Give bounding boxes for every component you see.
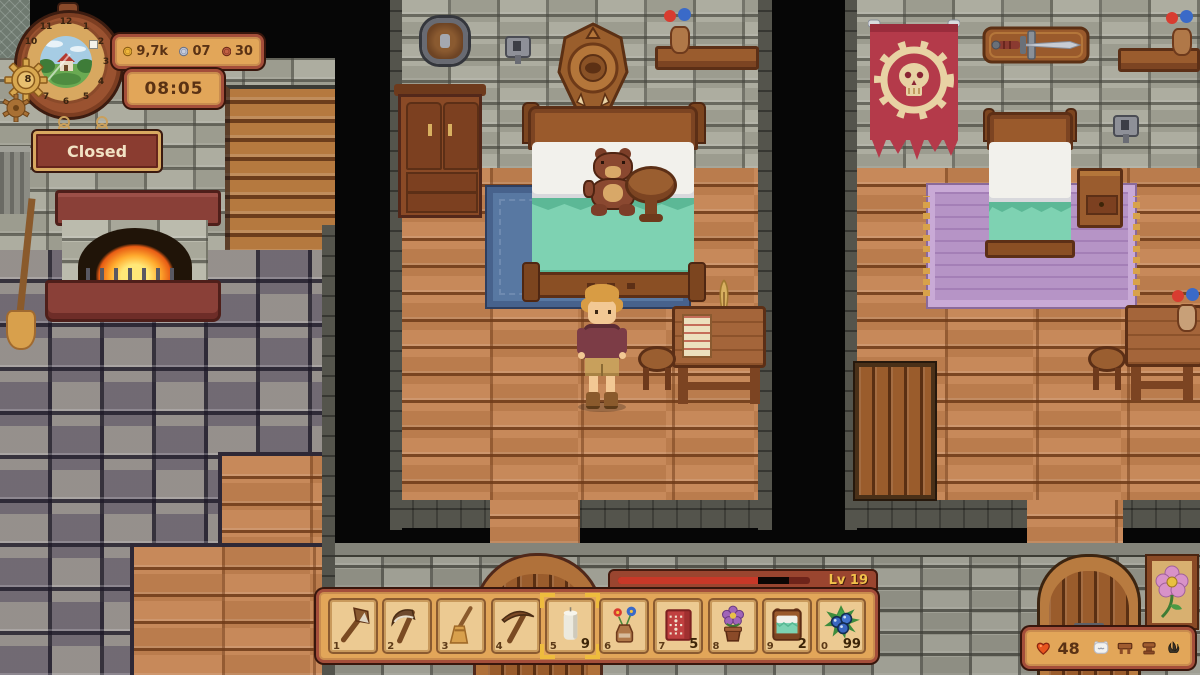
- table-rail: [1139, 381, 1185, 389]
- wardrobe-drawer-bottom: [406, 192, 478, 213]
- mid-room-bottom-border: [390, 500, 772, 528]
- staircase-upper[interactable]: [225, 85, 335, 252]
- broom-handle: [16, 198, 36, 318]
- rug-fringe: [1133, 196, 1140, 296]
- teddy-arm: [583, 180, 595, 198]
- currency-panel: 9,7k 07 30: [112, 34, 264, 69]
- round-table[interactable]: [625, 166, 677, 222]
- clock-number: 10: [24, 37, 38, 47]
- slot-count: 99: [843, 637, 861, 652]
- player-character[interactable]: [573, 284, 631, 414]
- slot-key: 5: [550, 641, 557, 652]
- mid-room-right-border: [758, 0, 772, 530]
- wardrobe-drawer-top: [406, 172, 478, 193]
- slot-key: 1: [333, 641, 340, 652]
- slot-key: 0: [821, 641, 828, 652]
- clock-number: 1: [79, 22, 93, 32]
- hotbar-slot-potted-flower[interactable]: 8: [708, 598, 758, 654]
- blue-flower: [1186, 288, 1199, 301]
- flower-vase-table-right[interactable]: [1172, 288, 1200, 334]
- red-flower: [664, 10, 676, 22]
- health-value: 48: [1058, 639, 1080, 658]
- hotbar-slot-pickaxe[interactable]: 4: [491, 598, 541, 654]
- stool-icon[interactable]: [1140, 636, 1158, 660]
- character-hand: [578, 352, 585, 359]
- hotbar-slot-red-rug[interactable]: 7 5: [653, 598, 703, 654]
- bedpost: [522, 262, 540, 302]
- slot-key: 8: [713, 641, 720, 652]
- framed-flower-picture[interactable]: [1147, 556, 1197, 628]
- broom-prop[interactable]: [4, 198, 34, 348]
- right-room-doorway[interactable]: [1027, 500, 1123, 543]
- nightstand[interactable]: [1077, 168, 1123, 228]
- character-hand: [619, 352, 626, 359]
- character-boot: [586, 392, 600, 409]
- tavern-status-sign[interactable]: Closed: [33, 131, 161, 171]
- hotbar-slot-axe[interactable]: 1: [328, 598, 378, 654]
- writing-desk[interactable]: [672, 278, 766, 404]
- level-badge: Lv 19: [829, 573, 868, 588]
- teddy-muzzle: [605, 166, 621, 178]
- gold-amount: 9,7k: [136, 44, 168, 59]
- slot-key: 9: [767, 641, 774, 652]
- vase-body: [1177, 304, 1197, 332]
- hotbar-slot-broom[interactable]: 3: [436, 598, 486, 654]
- status-sign-label: Closed: [67, 142, 127, 161]
- wall-sconce-mid[interactable]: [505, 36, 531, 58]
- gold-coin-icon: [123, 42, 132, 61]
- desk-leg: [750, 368, 760, 404]
- small-gear-icon: [2, 94, 30, 122]
- axe-icon: [332, 603, 374, 645]
- flower-art: [1152, 561, 1192, 623]
- stair-landing-lower: [130, 543, 322, 675]
- desk-rail: [688, 382, 750, 390]
- stool-leg: [665, 368, 671, 390]
- calendar: [682, 314, 712, 358]
- stool-middle[interactable]: [638, 346, 676, 392]
- wardrobe[interactable]: [398, 84, 482, 218]
- vase-body: [1172, 28, 1192, 56]
- game-time: 08:05: [144, 79, 203, 99]
- character-hair: [585, 284, 619, 302]
- character-shirt: [583, 324, 621, 360]
- sapling-icon[interactable]: [1164, 636, 1182, 660]
- slot-key: 2: [387, 641, 394, 652]
- slot-key: 4: [496, 641, 503, 652]
- clock-number-in-gear: 8: [21, 75, 35, 85]
- stool-leg: [1093, 368, 1099, 390]
- hotbar: 1 2 3 4: [316, 589, 878, 663]
- floor-trapdoor[interactable]: [855, 363, 935, 499]
- fireplace[interactable]: [42, 188, 218, 320]
- red-flower: [1166, 12, 1178, 24]
- right-room-bottom-border: [845, 500, 1200, 528]
- clock-widget[interactable]: 12 1 2 3 4 5 6 7 9 10 11 8: [10, 2, 128, 134]
- shorts-seam: [601, 364, 603, 376]
- sconce-stem: [1123, 134, 1129, 143]
- bed-right[interactable]: [983, 108, 1077, 258]
- pickaxe-icon: [495, 603, 537, 645]
- shield-boss: [440, 34, 450, 48]
- copper-amount: 30: [235, 44, 253, 59]
- slot-key: 7: [658, 641, 665, 652]
- wardrobe-handle-left: [428, 124, 432, 136]
- sconce-socket: [513, 41, 521, 51]
- clock-number: 11: [39, 22, 53, 32]
- silver-coin-icon: [179, 42, 188, 61]
- stool-leg: [643, 368, 649, 390]
- drawer-knob: [1099, 202, 1104, 207]
- round-shield-decor[interactable]: [422, 18, 468, 64]
- clock-number: 4: [94, 77, 108, 87]
- wardrobe-handle-right: [448, 124, 452, 136]
- bed-pillow-sheet: [989, 142, 1071, 206]
- sconce-socket: [1121, 120, 1129, 130]
- bottom-wall-cap: [335, 543, 1200, 557]
- character-eye: [595, 310, 598, 314]
- stool-right[interactable]: [1088, 346, 1126, 392]
- sconce-stem: [515, 55, 521, 64]
- vase-body: [670, 26, 690, 54]
- hotbar-slot-scythe[interactable]: 2: [382, 598, 432, 654]
- slot-count: 5: [689, 637, 698, 652]
- slot-count: 9: [581, 637, 590, 652]
- heart-icon: [1035, 637, 1052, 659]
- xp-track: [618, 577, 810, 584]
- red-flower: [1172, 290, 1184, 302]
- hotbar-slot-candle-selected[interactable]: 5 9: [545, 598, 595, 654]
- sword-wall-plaque[interactable]: [982, 24, 1090, 66]
- clock-number: 3: [99, 57, 113, 67]
- blue-flower: [678, 8, 691, 21]
- desk-leg: [678, 368, 688, 404]
- wardrobe-door-right: [443, 102, 479, 170]
- table-icon[interactable]: [1116, 636, 1134, 660]
- nightstand-drawer: [1086, 195, 1118, 215]
- wardrobe-door-left: [406, 102, 442, 170]
- mid-room-doorway[interactable]: [490, 500, 580, 543]
- potted-flower-icon: [712, 603, 754, 645]
- fireplace-hearth: [45, 280, 221, 322]
- stool-leg: [1115, 368, 1121, 390]
- table-top: [625, 166, 677, 204]
- clock-hour-marker: [89, 40, 98, 49]
- hotbar-slot-flower-vase[interactable]: 6: [599, 598, 649, 654]
- rug-fringe: [923, 196, 930, 296]
- flower-vase-shelf-right[interactable]: [1164, 10, 1196, 56]
- broom-bristles: [6, 310, 36, 350]
- slot-count: 2: [798, 637, 807, 652]
- copper-coin-icon: [222, 42, 231, 61]
- character-boot: [604, 392, 618, 409]
- footboard: [985, 240, 1075, 258]
- teddy-leg: [591, 204, 607, 216]
- wall-sconce-right[interactable]: [1113, 115, 1139, 137]
- mid-room-left-border: [390, 0, 402, 530]
- clock-number: 5: [79, 92, 93, 102]
- blue-flower: [1180, 10, 1193, 23]
- flower-vase-shelf-mid[interactable]: [662, 8, 694, 54]
- scythe-icon: [386, 603, 428, 645]
- character-eye: [608, 310, 611, 314]
- status-panel: 48: [1022, 627, 1195, 669]
- teddy-eye: [601, 161, 604, 164]
- time-panel: 08:05: [124, 69, 224, 108]
- character-face: [588, 300, 616, 324]
- flower-vase-icon: [603, 603, 645, 645]
- broom-icon: [440, 603, 482, 645]
- xp-fill: [618, 577, 758, 584]
- skull-banner[interactable]: [868, 18, 960, 164]
- hotbar-slot-berries[interactable]: 0 99: [816, 598, 866, 654]
- clock-number: 6: [59, 97, 73, 107]
- xp-notch: [758, 577, 789, 584]
- hotbar-slot-bed[interactable]: 9 2: [762, 598, 812, 654]
- clock-number: 12: [59, 17, 73, 27]
- blanket-zigzag: [989, 202, 1071, 212]
- slot-key: 6: [604, 641, 611, 652]
- xp-bar: Lv 19: [608, 569, 878, 590]
- stair-landing-upper: [218, 452, 322, 557]
- teddy-eye: [622, 161, 625, 164]
- slot-key: 3: [441, 641, 448, 652]
- pillow-icon[interactable]: [1092, 636, 1110, 660]
- character-arm: [577, 328, 586, 354]
- silver-amount: 07: [192, 44, 210, 59]
- teddy-belly: [603, 184, 623, 202]
- table-foot: [639, 214, 663, 222]
- game-viewport: 12 1 2 3 4 5 6 7 9 10 11 8: [0, 0, 1200, 675]
- character-arm: [618, 328, 627, 354]
